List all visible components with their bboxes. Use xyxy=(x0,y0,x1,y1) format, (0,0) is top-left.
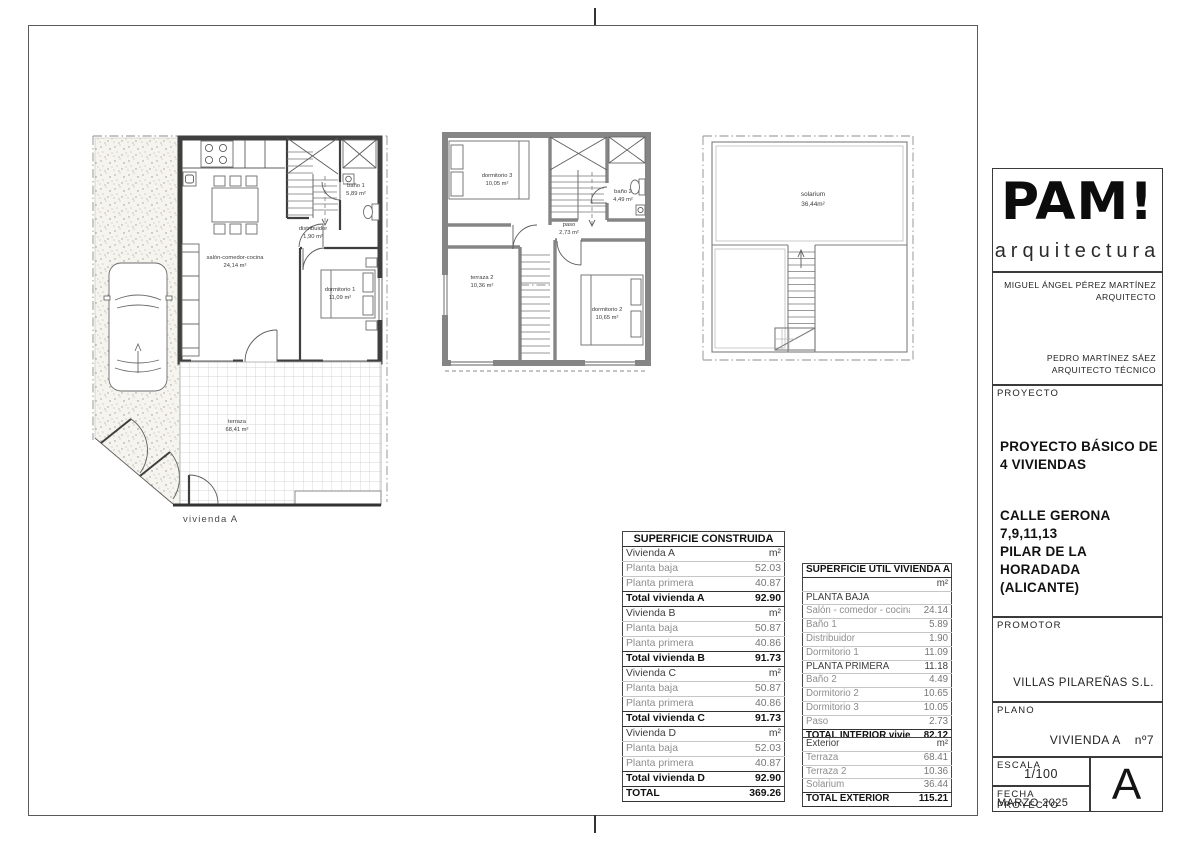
table-row: Planta primera40.86 xyxy=(623,697,785,712)
drawing-sheet: salón-comedor-cocina 24,14 m² dormitorio… xyxy=(0,0,1191,842)
table-title: SUPERFICIE CONSTRUIDA xyxy=(623,532,785,547)
table-row: Total vivienda C91.73 xyxy=(623,712,785,727)
table-row: PLANTA BAJA xyxy=(803,591,952,605)
project-title-line1: PROYECTO BÁSICO DE xyxy=(1000,438,1158,456)
table-row: Vivienda Cm² xyxy=(623,667,785,682)
fecha-value: MARZO 2025 xyxy=(997,797,1068,809)
dormitorio1-area: 11,09 m² xyxy=(329,295,352,301)
stairwell-lower xyxy=(520,255,550,353)
table-row: TOTAL EXTERIOR115.21 xyxy=(803,793,952,807)
distribuidor-label: distribuidor xyxy=(299,226,327,232)
fold-mark-top xyxy=(594,8,596,25)
address-line2: 7,9,11,13 xyxy=(1000,525,1162,543)
promotor-label: PROMOTOR xyxy=(997,620,1062,631)
table-title: SUPERFICIE ÚTIL VIVIENDA A xyxy=(803,564,952,578)
table-row: Vivienda Bm² xyxy=(623,607,785,622)
technical-architect-name: PEDRO MARTÍNEZ SÁEZ xyxy=(1047,352,1156,364)
paso-area: 2,73 m² xyxy=(559,230,579,236)
salon-terrace-door xyxy=(243,330,277,366)
logo-pam: PAM! xyxy=(993,175,1162,229)
ground-floor-walls xyxy=(180,138,384,366)
address-line3: PILAR DE LA HORADADA xyxy=(1000,543,1162,579)
garden-area xyxy=(95,138,180,504)
vivienda-a-label: vivienda A xyxy=(183,514,238,525)
architect-name: MIGUEL ÁNGEL PÉREZ MARTÍNEZ xyxy=(1004,279,1156,291)
dormitorio2-label: dormitorio 2 xyxy=(592,307,623,313)
promotor-box: PROMOTOR VILLAS PILAREÑAS S.L. xyxy=(992,617,1163,702)
table-row: Exteriorm² xyxy=(803,738,952,752)
technical-architect-role: ARQUITECTO TÉCNICO xyxy=(1047,364,1156,376)
table-row: Dormitorio 210.65 xyxy=(803,688,952,702)
table-row: TOTAL369.26 xyxy=(623,787,785,802)
roof-plan: solarium 36,44m² xyxy=(695,128,935,373)
table-row: Distribuidor1.90 xyxy=(803,632,952,646)
table-row: Terraza68.41 xyxy=(803,751,952,765)
bed-double xyxy=(321,270,375,318)
ground-floor-plan: salón-comedor-cocina 24,14 m² dormitorio… xyxy=(85,130,395,530)
promotor-name: VILLAS PILAREÑAS S.L. xyxy=(1013,677,1154,689)
logo-box: PAM! arquitectura xyxy=(992,168,1163,272)
plano-name: VIVIENDA A xyxy=(1050,733,1121,747)
table-row: PLANTA PRIMERA11.18 xyxy=(803,660,952,674)
plot-boundary xyxy=(703,136,913,360)
superficie-util-table: SUPERFICIE ÚTIL VIVIENDA A m² PLANTA BAJ… xyxy=(802,563,952,743)
terraza2-label: terraza 2 xyxy=(471,275,494,281)
salon-area: 24,14 m² xyxy=(224,263,247,269)
dormitorio3-area: 10,05 m² xyxy=(486,181,509,187)
bano2-area: 4,49 m² xyxy=(613,197,633,203)
table-row: Terraza 210.36 xyxy=(803,765,952,779)
dormitorio2-area: 10,65 m² xyxy=(596,315,619,321)
table-row: Planta primera40.86 xyxy=(623,637,785,652)
table-row: Total vivienda D92.90 xyxy=(623,772,785,787)
table-row: Total vivienda B91.73 xyxy=(623,652,785,667)
bano2-label: baño 2 xyxy=(614,189,632,195)
superficie-exterior-table: Exteriorm² Terraza68.41 Terraza 210.36 S… xyxy=(802,737,952,807)
logo-subtitle: arquitectura xyxy=(993,240,1162,263)
dormitorio1-label: dormitorio 1 xyxy=(325,287,356,293)
table-row: Planta baja52.03 xyxy=(623,562,785,577)
bano1-label: baño 1 xyxy=(347,183,365,189)
address-line1: CALLE GERONA xyxy=(1000,507,1162,525)
escala-value: 1/100 xyxy=(993,767,1089,781)
staircase xyxy=(287,138,340,230)
table-row: Planta baja50.87 xyxy=(623,682,785,697)
superficie-construida-table: SUPERFICIE CONSTRUIDA Vivienda Am² Plant… xyxy=(622,531,785,802)
dormitorio3-label: dormitorio 3 xyxy=(482,173,513,179)
table-row: Solarium36.44 xyxy=(803,779,952,793)
sheet-letter-box: A xyxy=(1090,757,1163,812)
table-row: Planta baja50.87 xyxy=(623,622,785,637)
terrace xyxy=(173,362,381,505)
car-top-view xyxy=(104,263,172,391)
table-row: Dormitorio 310.05 xyxy=(803,701,952,715)
roof-walls xyxy=(712,142,907,352)
table-row: Paso2.73 xyxy=(803,715,952,729)
fecha-box: FECHA PROYECTO MARZO 2025 xyxy=(992,786,1090,812)
plano-box: PLANO VIVIENDA Anº7 xyxy=(992,702,1163,757)
table-row: Planta primera40.87 xyxy=(623,577,785,592)
table-row: Planta baja52.03 xyxy=(623,742,785,757)
proyecto-label: PROYECTO xyxy=(997,388,1059,399)
project-title-line2: 4 VIVIENDAS xyxy=(1000,456,1158,474)
first-floor-plan: dormitorio 3 10,05 m² baño 2 4,49 m² pas… xyxy=(435,125,660,377)
sofa xyxy=(182,244,199,356)
table-row: Vivienda Am² xyxy=(623,547,785,562)
table-row: Total vivienda A92.90 xyxy=(623,592,785,607)
escala-box: ESCALA 1/100 xyxy=(992,757,1090,786)
sheet-letter: A xyxy=(1112,760,1141,810)
roof-staircase xyxy=(775,250,815,350)
table-row: Baño 24.49 xyxy=(803,674,952,688)
terraza2-area: 10,36 m² xyxy=(471,283,494,289)
bedroom3 xyxy=(449,141,537,249)
salon-label: salón-comedor-cocina xyxy=(206,255,264,261)
address-line4: (ALICANTE) xyxy=(1000,579,1162,597)
bedroom1 xyxy=(299,224,380,362)
terraza-label: terraza xyxy=(228,419,247,425)
dining-table xyxy=(212,176,258,234)
bano1-area: 5,89 m² xyxy=(346,191,366,197)
proyecto-box: PROYECTO PROYECTO BÁSICO DE 4 VIVIENDAS … xyxy=(992,385,1163,617)
table-row: Vivienda Dm² xyxy=(623,727,785,742)
distribuidor-area: 1,90 m² xyxy=(303,234,323,240)
table-row: Planta primera40.87 xyxy=(623,757,785,772)
table-row: Baño 15.89 xyxy=(803,619,952,633)
table-row: Salón - comedor - cocina24.14 xyxy=(803,605,952,619)
table-row: Dormitorio 111.09 xyxy=(803,646,952,660)
architect-role: ARQUITECTO xyxy=(1004,291,1156,303)
table-row: m² xyxy=(803,577,952,591)
plano-number: nº7 xyxy=(1135,733,1154,747)
fold-mark-bottom xyxy=(594,815,596,833)
bedroom2 xyxy=(557,236,643,345)
upper-staircase xyxy=(550,137,607,226)
architects-box: MIGUEL ÁNGEL PÉREZ MARTÍNEZ ARQUITECTO P… xyxy=(992,272,1163,385)
solarium-area: 36,44m² xyxy=(801,201,824,208)
paso-label: paso xyxy=(563,222,576,228)
terraza-area: 68,41 m² xyxy=(226,427,249,433)
solarium-label: solarium xyxy=(801,191,825,198)
plano-label: PLANO xyxy=(997,705,1035,716)
room-labels: solarium 36,44m² xyxy=(801,191,825,208)
